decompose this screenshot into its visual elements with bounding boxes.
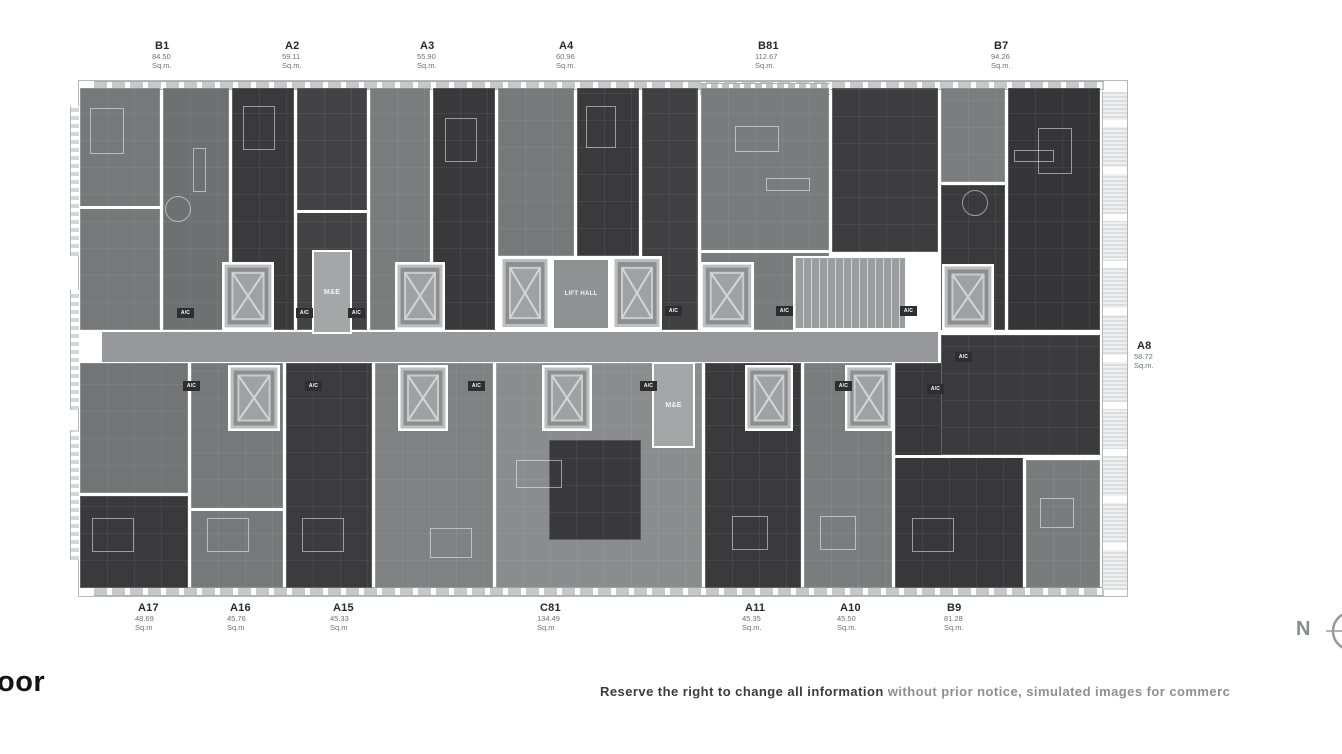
elevator-shaft-icon — [228, 365, 280, 431]
partition-wall — [297, 210, 367, 213]
ac-ledge-label: A/C — [640, 381, 657, 391]
partition-wall — [701, 250, 829, 253]
unit-area: 45.50 — [837, 614, 907, 623]
unit-name: A15 — [333, 602, 400, 614]
ac-ledge-label: A/C — [183, 381, 200, 391]
unit-label-b9: B9 81.28 Sq.m. — [944, 602, 1014, 632]
elevator-shaft-icon — [542, 365, 592, 431]
bed — [207, 518, 249, 552]
bed — [430, 528, 472, 558]
dining-table — [516, 460, 562, 488]
unit-label-b1: B1 84.50 Sq.m. — [152, 40, 222, 70]
partition-wall — [80, 206, 160, 209]
unit-area: 45.76 — [227, 614, 297, 623]
ac-ledge-label: A/C — [296, 308, 313, 318]
ac-ledge-label: A/C — [835, 381, 852, 391]
unit-label-a15: A15 45.33 Sq.m — [330, 602, 400, 632]
bed — [90, 108, 124, 154]
unit-area: 60.96 — [556, 52, 626, 61]
elevator-shaft-icon — [612, 256, 662, 330]
elevator-core — [500, 256, 550, 330]
unit-area: 112.67 — [755, 52, 825, 61]
unit-label-c81: C81 134.49 Sq.m — [537, 602, 607, 632]
elevator-shaft-icon — [500, 256, 550, 330]
unit-area-unit: Sq.m. — [152, 61, 222, 70]
unit-name: C81 — [540, 602, 607, 614]
elevator-shaft-icon — [942, 264, 994, 330]
disclaimer-text: Reserve the right to change all informat… — [600, 684, 1230, 699]
ac-ledge-label: A/C — [665, 306, 682, 316]
unit-name: A17 — [138, 602, 205, 614]
elevator-core — [542, 365, 592, 431]
ac-ledge-label: A/C — [927, 384, 944, 394]
sofa — [193, 148, 206, 192]
ac-ledge-label: A/C — [468, 381, 485, 391]
unit-area-unit: Sq.m. — [282, 61, 352, 70]
unit-label-b81: B81 112.67 Sq.m. — [755, 40, 825, 70]
dining-table-round — [962, 190, 988, 216]
unit-block — [832, 88, 938, 252]
unit-label-a10: A10 45.50 Sq.m. — [837, 602, 907, 632]
unit-area: 48.69 — [135, 614, 205, 623]
unit-label-a2: A2 59.11 Sq.m. — [282, 40, 352, 70]
bed — [820, 516, 856, 550]
elevator-shaft-icon — [398, 365, 448, 431]
sofa — [1014, 150, 1054, 162]
floorplan-canvas: LIFT HALL M&E M&E A/C A/C A/C A/C A/C A/… — [0, 0, 1342, 754]
unit-area: 45.35 — [742, 614, 812, 623]
unit-area-unit: Sq.m. — [837, 623, 907, 632]
unit-name: B7 — [994, 40, 1061, 52]
elevator-shaft-icon — [845, 365, 893, 431]
unit-label-b7: B7 94.26 Sq.m. — [991, 40, 1061, 70]
unit-label-a17: A17 48.69 Sq.m — [135, 602, 205, 632]
unit-area: 59.11 — [282, 52, 352, 61]
compass-north-label: N — [1296, 618, 1310, 641]
bed — [912, 518, 954, 552]
unit-area-unit: Sq.m. — [742, 623, 812, 632]
elevator-core — [942, 264, 994, 330]
unit-area: 55.90 — [417, 52, 487, 61]
unit-name: B9 — [947, 602, 1014, 614]
unit-block — [80, 363, 188, 493]
lift-hall-label: LIFT HALL — [564, 291, 597, 297]
elevator-shaft-icon — [395, 262, 445, 330]
unit-area-unit: Sq.m — [537, 623, 607, 632]
unit-label-a3: A3 55.90 Sq.m. — [417, 40, 487, 70]
unit-label-a11: A11 45.35 Sq.m. — [742, 602, 812, 632]
elevator-core — [845, 365, 893, 431]
elevator-core — [395, 262, 445, 330]
me-room-label: M&E — [665, 402, 681, 409]
unit-area-unit: Sq.m. — [944, 623, 1014, 632]
unit-area-unit: Sq.m — [227, 623, 297, 632]
unit-area-unit: Sq.m — [330, 623, 400, 632]
unit-name: A8 — [1137, 340, 1204, 352]
unit-label-a16: A16 45.76 Sq.m — [227, 602, 297, 632]
ac-ledge-label: A/C — [177, 308, 194, 318]
me-room-label: M&E — [324, 289, 340, 296]
dining-table — [735, 126, 779, 152]
elevator-core — [612, 256, 662, 330]
right-balcony-strip — [1102, 92, 1128, 590]
elevator-shaft-icon — [222, 262, 274, 330]
elevator-core — [228, 365, 280, 431]
unit-area-unit: Sq.m. — [991, 61, 1061, 70]
unit-name: A11 — [745, 602, 812, 614]
ac-ledge-label: A/C — [305, 381, 322, 391]
corridor — [102, 332, 938, 362]
unit-area-unit: Sq.m. — [417, 61, 487, 70]
unit-name: A16 — [230, 602, 297, 614]
elevator-core — [700, 262, 754, 330]
unit-block — [498, 88, 574, 256]
unit-area: 81.28 — [944, 614, 1014, 623]
dining-table-round — [165, 196, 191, 222]
left-edge-ticks — [70, 106, 79, 256]
unit-area-unit: Sq.m. — [1134, 361, 1204, 370]
unit-name: A4 — [559, 40, 626, 52]
partition-wall — [191, 508, 283, 511]
bed — [302, 518, 344, 552]
ac-ledge-label: A/C — [955, 352, 972, 362]
elevator-core — [745, 365, 793, 431]
bottom-balcony-ticks — [94, 587, 1104, 596]
disclaimer-part2: without prior notice, simulated images f… — [884, 684, 1231, 699]
ac-ledge-label: A/C — [776, 306, 793, 316]
unit-area-unit: Sq.m — [135, 623, 205, 632]
floor-title-fragment: oor — [0, 666, 45, 699]
unit-name: B81 — [758, 40, 825, 52]
bed — [445, 118, 477, 162]
sofa — [766, 178, 810, 191]
unit-area: 94.26 — [991, 52, 1061, 61]
unit-name: A10 — [840, 602, 907, 614]
unit-block — [941, 88, 1005, 182]
unit-area: 58.72 — [1134, 352, 1204, 361]
elevator-core — [222, 262, 274, 330]
bed — [732, 516, 768, 550]
unit-block — [1008, 88, 1100, 330]
bed — [586, 106, 616, 148]
bed — [243, 106, 275, 150]
unit-name: A2 — [285, 40, 352, 52]
partition-wall — [895, 455, 1023, 458]
unit-block — [286, 363, 372, 588]
elevator-shaft-icon — [700, 262, 754, 330]
me-room: M&E — [312, 250, 352, 334]
left-edge-ticks — [70, 430, 79, 560]
left-edge-ticks — [70, 290, 79, 410]
bed — [1040, 498, 1074, 528]
unit-name: A3 — [420, 40, 487, 52]
unit-area: 134.49 — [537, 614, 607, 623]
unit-area-unit: Sq.m. — [556, 61, 626, 70]
elevator-core — [398, 365, 448, 431]
unit-area-unit: Sq.m. — [755, 61, 825, 70]
staircase — [793, 256, 907, 330]
unit-name: B1 — [155, 40, 222, 52]
bed — [92, 518, 134, 552]
lift-hall: LIFT HALL — [552, 258, 610, 330]
unit-area: 84.50 — [152, 52, 222, 61]
elevator-shaft-icon — [745, 365, 793, 431]
ac-ledge-label: A/C — [900, 306, 917, 316]
unit-label-a4: A4 60.96 Sq.m. — [556, 40, 626, 70]
ac-ledge-label: A/C — [348, 308, 365, 318]
unit-label-a8: A8 58.72 Sq.m. — [1134, 340, 1204, 370]
me-room: M&E — [652, 362, 695, 448]
disclaimer-part1: Reserve the right to change all informat… — [600, 684, 884, 699]
unit-block — [549, 440, 641, 540]
unit-area: 45.33 — [330, 614, 400, 623]
compass-icon — [1318, 600, 1342, 662]
